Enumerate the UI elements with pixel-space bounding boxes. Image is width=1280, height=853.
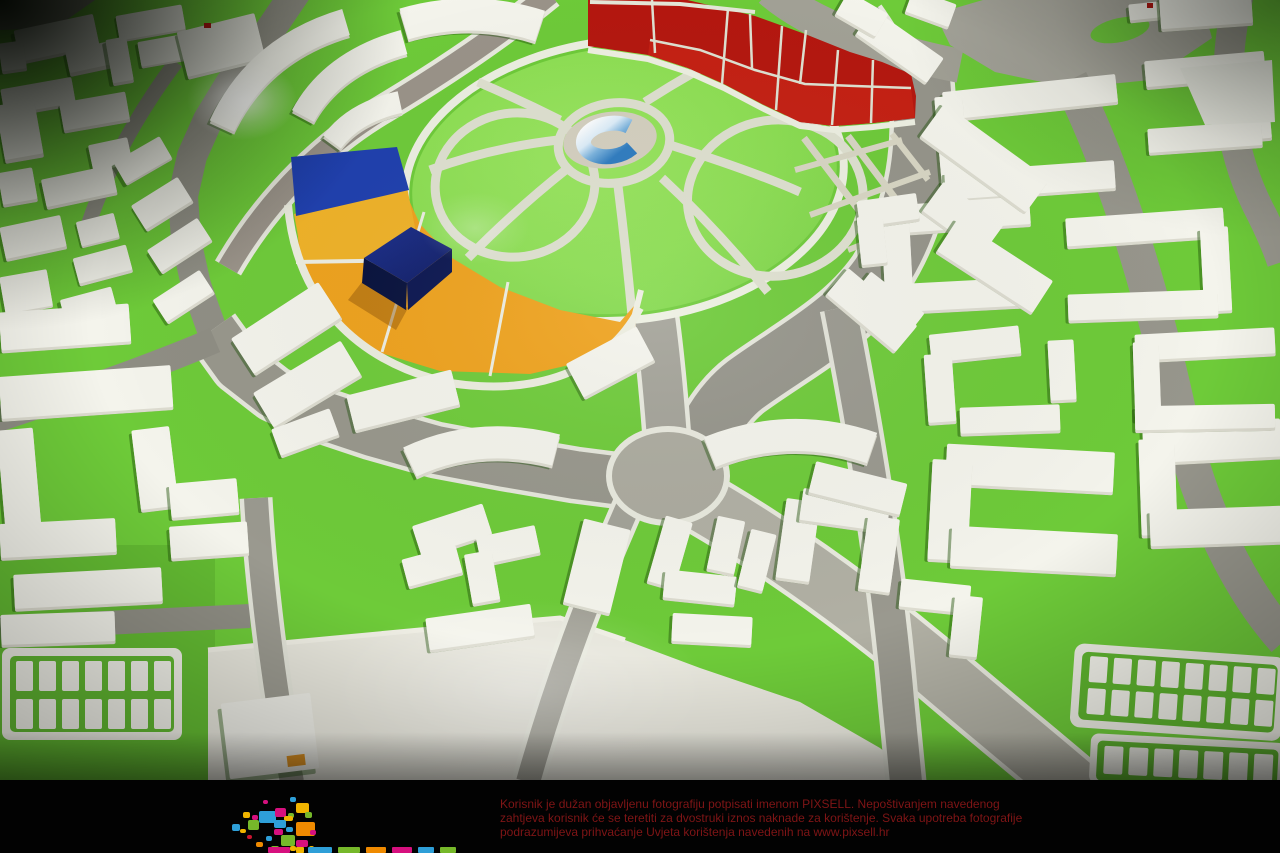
svg-text:zahtjeva korisnik će se tereti: zahtjeva korisnik će se teretiti za dvos…	[500, 811, 1023, 825]
svg-text:podrazumijeva prihvaćanje Uvje: podrazumijeva prihvaćanje Uvjeta korište…	[500, 825, 890, 839]
svg-text:Korisnik je dužan objavljenu f: Korisnik je dužan objavljenu fotografiju…	[500, 797, 1000, 811]
